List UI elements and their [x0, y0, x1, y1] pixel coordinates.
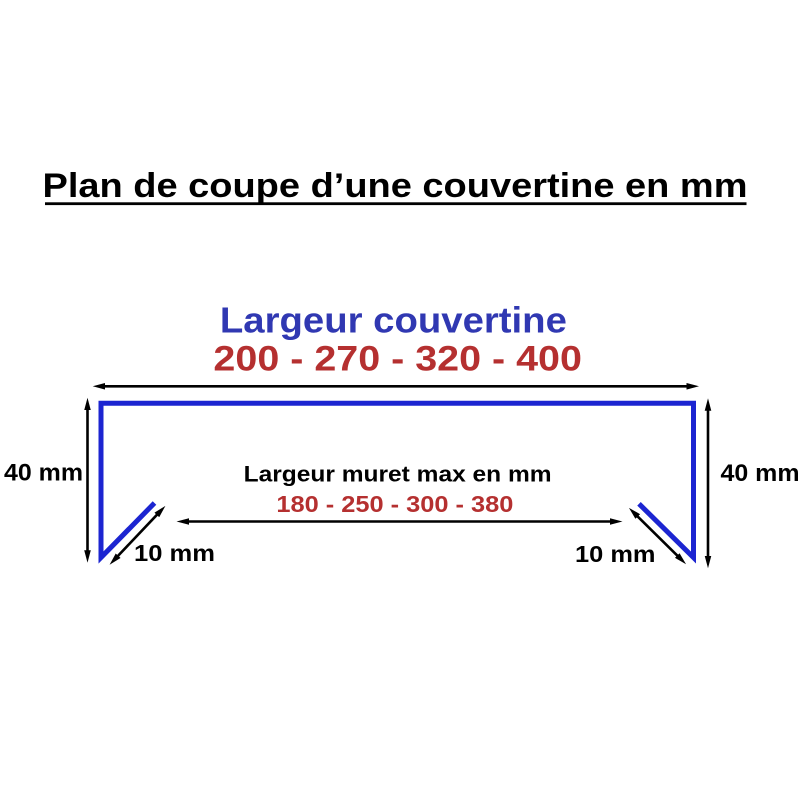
svg-text:40 mm: 40 mm — [721, 460, 800, 487]
svg-text:Largeur muret max en mm: Largeur muret max en mm — [244, 462, 552, 487]
svg-text:Plan de coupe d’une couvertine: Plan de coupe d’une couvertine en mm — [43, 167, 748, 205]
svg-text:10 mm: 10 mm — [134, 540, 215, 566]
svg-text:10 mm: 10 mm — [575, 541, 656, 567]
svg-text:180 - 250 - 300 - 380: 180 - 250 - 300 - 380 — [276, 491, 513, 517]
svg-text:40 mm: 40 mm — [4, 459, 83, 486]
svg-text:200 - 270 - 320 - 400: 200 - 270 - 320 - 400 — [213, 338, 582, 378]
svg-text:Largeur couvertine: Largeur couvertine — [220, 300, 567, 341]
